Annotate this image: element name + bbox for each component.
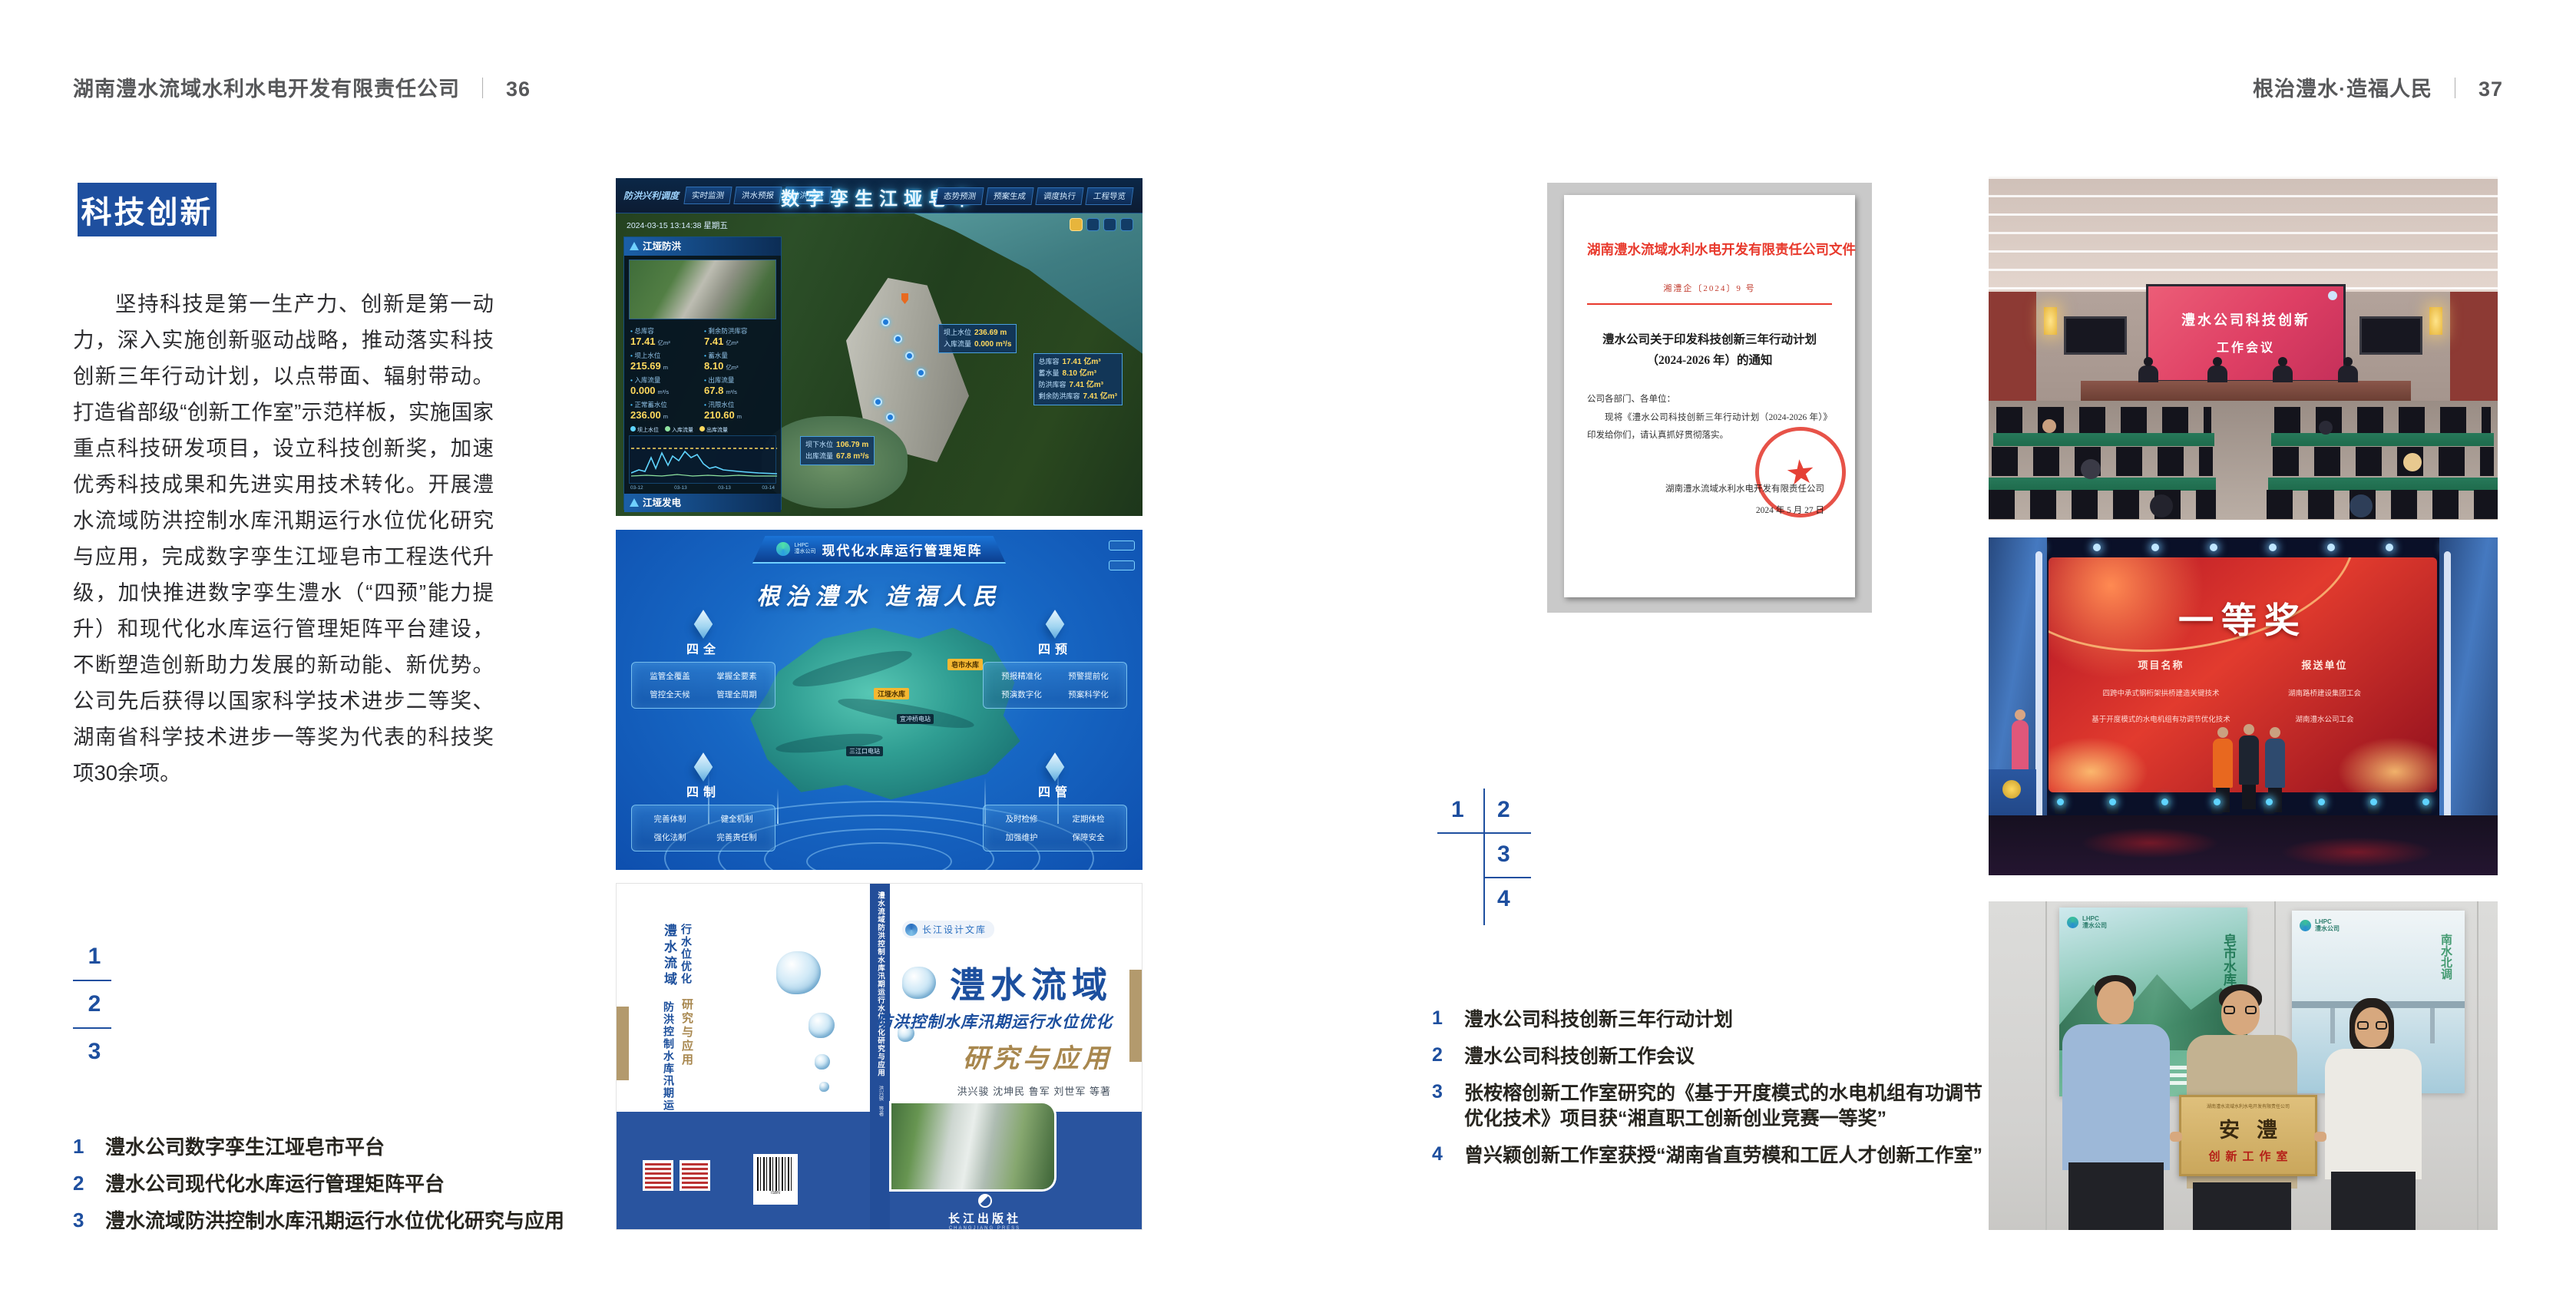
attendee-head [2319,421,2333,435]
left-page-header: 湖南澧水流域水利水电开发有限责任公司｜36 [73,72,531,102]
book-authors: 洪兴骏 沈坤民 鲁军 刘世军 等著 [957,1083,1111,1098]
screen-logo [2328,291,2337,300]
x-tick: 03-13 [674,485,687,491]
map-tag-downstream: 坝下水位106.79 m 出库流量67.8 m³/s [800,436,875,465]
tool-icon [1086,218,1100,231]
stat-value: 215.69 [630,360,661,372]
right-page-header: 根治澧水·造福人民｜37 [2253,72,2503,102]
stat-label: 汛限水位 [704,400,775,409]
header-divider: ｜ [472,78,494,101]
panel-item: 强化法制 [637,832,703,843]
tag-value: 17.41 亿m³ [1063,358,1101,366]
bridge-pier [2330,1008,2335,1043]
wall-seam [2477,901,2478,1230]
dashboard-timestamp: 2024-03-15 13:14:38 星期五 [627,220,728,231]
panel-item: 预案科学化 [1055,689,1122,700]
panel-siquan: 四全 监管全覆盖 掌握全要素 管控全天候 管理全周期 [631,616,775,709]
audience-row [1992,447,2213,476]
stat-label: 年累计发电量 [704,515,775,516]
series-badge: 长江设计文库 [902,921,994,938]
gate-marker [886,413,894,422]
panel-item: 预警提前化 [1055,670,1122,682]
tool-icon [1120,218,1133,231]
audience-row [1996,407,2211,436]
caption-text: 澧水流域防洪控制水库汛期运行水位优化研究与应用 [105,1208,564,1234]
project-name: 基于开度模式的水电机组有功调节优化技术 [2079,713,2243,724]
wall-lamp [2429,307,2442,335]
moving-head-light [2264,795,2275,814]
flood-stats: 总库容17.41亿m³ 剩余防洪库容7.41亿m³ 坝上水位215.69m 蓄水… [624,323,781,425]
document-paper: 湖南澧水流域水利水电开发有限责任公司文件 湘澧企〔2024〕9 号 澧水公司关于… [1564,195,1855,597]
lhpc-logo [776,542,790,556]
moving-head-light [2159,795,2171,814]
panel-title: 四制 [631,782,775,800]
screen-title-line2: 工作会议 [2148,337,2343,355]
cube-icon [694,610,713,639]
person-head [2097,981,2134,1024]
audience-row [2273,447,2494,476]
tag-label: 坝上水位 [944,329,971,336]
figure-index-number: 3 [73,1035,116,1069]
attendee-head [2349,494,2373,517]
green-desk [1989,478,2216,491]
x-tick: 03-14 [762,485,775,491]
moving-head-light [2316,795,2327,814]
spine-authors: 洪兴骏 等著 [876,1086,884,1116]
book-title-tail: 研究与应用 [963,1037,1113,1075]
caption-row: 3澧水流域防洪控制水库汛期运行水位优化研究与应用 [73,1208,564,1234]
tag-value: 0.000 m³/s [974,340,1011,349]
series-name: 长江设计文库 [922,923,987,936]
stat-value: 210.60 [704,409,735,421]
gate-marker [894,335,902,343]
figure-digital-twin-dashboard: 防洪兴利调度 实时监测 洪水预报 防洪预警 数字孪生江垭皂市 态势预测 预案生成… [616,178,1143,516]
caption-row: 2澧水公司现代化水库运行管理矩阵平台 [73,1172,564,1197]
stat-unit: m³/s [658,388,670,395]
document-header: 湖南澧水流域水利水电开发有限责任公司文件 [1587,240,1832,259]
tag-value: 236.69 m [974,329,1007,337]
stat-label: 总库容 [630,326,701,336]
legend-swatch [630,426,636,431]
tag-value: 7.41 亿m³ [1070,381,1103,389]
stat-label: 入库流量 [630,375,701,385]
left-figure-index: 1 2 3 [73,940,116,1069]
stage-lights-top [2035,544,2452,556]
dais-desk [2081,381,2411,401]
stat: 蓄水量8.10亿m³ [703,349,776,374]
panelist-silhouette [2207,365,2227,382]
glasses-icon [2357,1021,2369,1030]
book-title-main: 澧水流域 [950,957,1113,1008]
stat-unit: 亿m³ [726,364,738,371]
panel-sizhi: 四制 完善体制 健全机制 强化法制 完善责任制 [631,759,775,851]
panel-item: 加强维护 [988,832,1055,843]
document-salutation: 公司各部门、各单位： [1587,392,1832,405]
tag-value: 106.79 m [836,441,868,449]
moving-head-light [2107,795,2118,814]
stat-label: 剩余防洪库容 [704,326,775,336]
tab-realtime-monitor: 实时监测 [683,187,732,204]
person-pants [2068,1162,2164,1230]
stat: 年发电计划6.3000亿度 [629,514,703,516]
tab-project-tour: 工程导览 [1085,187,1133,205]
legend-swatch [665,426,670,431]
section-badge: 科技创新 [78,183,217,236]
person-shirt-blue [2062,1024,2170,1170]
right-caption-list: 1澧水公司科技创新三年行动计划 2澧水公司科技创新工作会议 3张桉榕创新工作室研… [1432,1007,1989,1180]
cube-icon [694,752,713,782]
tag-value: 67.8 m³/s [836,452,869,461]
tag-label: 总库容 [1039,358,1060,365]
attendee-head [2403,453,2422,471]
legend-label: 坝上水位 [637,428,659,433]
panel-item: 及时检修 [988,813,1055,825]
caption-text: 澧水公司数字孪生江垭皂市平台 [105,1135,385,1160]
panel-item: 完善体制 [637,813,703,825]
water-level-chart [629,435,776,484]
body-paragraph: 坚持科技是第一生产力、创新是第一动力，深入实施创新驱动战略，推动落实科技创新三年… [73,286,494,791]
cover-tan-tab [1129,970,1142,1062]
dashboard-right-tabs: 态势预测 预案生成 调度执行 工程导览 [937,187,1136,205]
poster-logo-text: 澧水公司 [2315,925,2340,932]
map-marker: 江垭水库 [874,688,909,699]
legend-swatch [699,426,705,431]
audience-row [1989,490,2216,519]
caption-number: 2 [73,1172,105,1197]
wall-panel [1989,292,2036,401]
light-dot [2093,544,2101,551]
caption-row: 2澧水公司科技创新工作会议 [1432,1044,1989,1070]
panel-title: 四全 [631,639,775,657]
spine-title: 澧水流域防洪控制水库汛期运行水位优化研究与应用 [875,891,885,1077]
qr-code [643,1160,673,1191]
header-button [1109,541,1135,551]
wall-tv [2064,316,2127,355]
water-drop [819,1082,829,1092]
header-button [1109,560,1135,570]
stat: 年累计发电量1.2907亿度 [703,514,776,516]
moving-head-light [2211,795,2223,814]
figure-index-number: 3 [1497,841,1510,868]
panel-item: 定期体检 [1055,813,1122,825]
index-line-horizontal [1483,877,1531,878]
moving-head-light [2368,795,2379,814]
figure-index-number: 1 [1451,797,1464,823]
meeting-screen: 澧水公司科技创新 工作会议 [2146,284,2346,382]
chart-canvas [631,438,777,478]
caption-number: 1 [1432,1007,1464,1033]
panel-item: 健全机制 [703,813,770,825]
caption-row: 1澧水公司数字孪生江垭皂市平台 [73,1135,564,1160]
gold-glow [2337,737,2437,792]
stat-value: 0.000 [630,385,656,396]
stat-value: 236.00 [630,409,661,421]
poster-logo-text: LHPC [2315,918,2332,925]
panel-siguan: 四管 及时检修 定期体检 加强维护 保障安全 [983,759,1127,851]
glasses-icon [2245,1006,2257,1014]
plaque-header: 湖南澧水流域水利水电开发有限责任公司 [2181,1103,2315,1109]
green-desk [1993,433,2214,446]
award-headline: 一等奖 [2049,593,2437,643]
panelist-silhouette [2138,365,2158,382]
stat: 汛限水位210.60m [703,398,776,423]
glasses-icon [2376,1021,2387,1030]
qr-code [680,1160,710,1191]
caption-number: 3 [73,1208,105,1234]
wall-lamp [2044,307,2057,335]
tag-label: 剩余防洪库容 [1039,392,1080,400]
stat: 出库流量67.8m³/s [703,374,776,398]
figure-index-number: 1 [73,940,116,974]
map-tag-upstream: 坝上水位236.69 m 入库流量0.000 m³/s [938,324,1017,353]
workshop-plaque: 湖南澧水流域水利水电开发有限责任公司 安澧 创新工作室 [2179,1095,2317,1176]
right-page-number: 37 [2478,78,2503,101]
light-dot [2210,544,2217,551]
barcode: ISBN [753,1154,798,1205]
stat: 剩余防洪库容7.41亿m³ [703,325,776,349]
project-name: 四跨中承式钢桁架拱桥建造关键技术 [2079,687,2243,698]
slogan-calligraphy: 根治澧水 造福人民 [616,577,1143,611]
hand [2170,1132,2182,1142]
changjiang-press-logo [978,1194,992,1208]
presenter-suit [2239,736,2259,785]
poster-logo-text: 澧水公司 [2082,922,2107,929]
panel-title: 四预 [983,639,1127,657]
index-line-vertical [1483,789,1485,925]
poster-vertical-title: 南水北调 [2438,934,2454,980]
series-logo [905,924,918,936]
wall-tv [2359,316,2422,355]
figure-index-number: 2 [1497,797,1510,823]
divider [73,980,111,981]
book-title-sub: 防洪控制水库汛期运行水位优化 [876,1010,1113,1033]
x-tick: 03-12 [630,485,643,491]
person-shirt-white [2325,1049,2422,1179]
gate-marker [874,398,882,406]
index-line-horizontal [1437,832,1531,834]
stat-unit: m [737,413,742,420]
caption-text: 澧水公司科技创新三年行动计划 [1464,1007,1733,1033]
tab-dispatch-execution: 调度执行 [1035,187,1083,205]
publisher-block: 长江出版社 CHANGJIANG PRESS [948,1194,1021,1230]
floor-reflection [2280,837,2434,868]
light-dot [2327,544,2335,551]
light-dot [2269,544,2277,551]
wall-panel [2450,292,2498,401]
panel-item: 监管全覆盖 [637,670,703,682]
plaque-subtitle: 创新工作室 [2181,1148,2315,1164]
cover-dam-photo [891,1103,1054,1189]
header-divider: ｜ [2445,78,2466,101]
gold-glow [2049,737,2148,792]
logo-text: LHPC [795,543,809,548]
water-drop [815,1054,830,1070]
panel-title-flood: 江垭防洪 [624,237,781,256]
panel-item: 管控全天候 [637,689,703,700]
lhpc-logo [2300,920,2311,931]
water-drop [776,951,821,994]
stat-value: 67.8 [704,385,723,396]
panel-item: 掌握全要素 [703,670,770,682]
caption-number: 3 [1432,1081,1464,1132]
tag-label: 防洪库容 [1039,381,1066,388]
panel-item: 预报精准化 [988,670,1055,682]
column-org: 报送单位 [2243,657,2406,672]
light-pillar [777,789,779,824]
panel-item: 完善责任制 [703,832,770,843]
green-desk [2268,478,2498,491]
legend-label: 出库流量 [706,428,728,433]
panelist-silhouette [2338,365,2358,382]
figure-official-document: 湖南澧水流域水利水电开发有限责任公司文件 湘澧企〔2024〕9 号 澧水公司关于… [1547,183,1872,613]
panel-item: 管理全周期 [703,689,770,700]
figure-book-cover: 澧水流域 防洪控制水库汛期运行水位优化 研究与应用 ISBN 澧水流域防洪控制水… [616,883,1143,1230]
chart-legend: 坝上水位 入库流量 出库流量 [624,425,781,434]
caption-row: 3张桉榕创新工作室研究的《基于开度模式的水电机组有功调节优化技术》项目获“湘直职… [1432,1081,1989,1132]
caption-text: 澧水公司现代化水库运行管理矩阵平台 [105,1172,445,1197]
stat-unit: 亿m³ [658,339,670,346]
stat-label: 蓄水量 [704,351,775,360]
dashboard-toolbar [1070,218,1133,231]
panel-siyu: 四预 预报精准化 预警提前化 预演数字化 预案科学化 [983,616,1127,709]
stat-label: 年发电计划 [630,515,701,516]
audience-row [2274,407,2491,436]
stat-value: 8.10 [704,360,723,372]
water-drop [809,1013,835,1038]
cube-icon [1046,752,1064,782]
stat: 入库流量0.000m³/s [629,374,703,398]
figure-innovation-meeting: 澧水公司科技创新 工作会议 [1989,177,2498,520]
star-icon: ★ [1784,451,1818,494]
cover-tan-tab [617,1007,629,1080]
page-motto: 根治澧水·造福人民 [2253,78,2432,101]
caption-number: 1 [73,1135,105,1160]
stat-label: 坝上水位 [630,351,701,360]
stat-unit: m [663,364,668,371]
figure-index-number: 2 [73,987,116,1021]
light-dot [2386,544,2393,551]
back-title-line: 研究与应用 [680,998,693,1067]
green-desk [2271,433,2494,446]
left-page-number: 36 [506,78,531,101]
left-data-panel: 江垭防洪 总库容17.41亿m³ 剩余防洪库容7.41亿m³ 坝上水位215.6… [623,236,782,510]
tag-label: 坝下水位 [805,441,833,448]
stat: 坝上水位215.69m [629,349,703,374]
divider [73,1027,111,1029]
caption-text: 澧水公司科技创新工作会议 [1464,1044,1695,1070]
plaque-title: 安澧 [2181,1113,2315,1143]
podium-emblem [2002,780,2021,798]
tab-situation-forecast: 态势预测 [935,187,984,205]
stage-side-wall [2439,537,2498,831]
back-cover-title: 澧水流域 防洪控制水库汛期运行水位优化 研究与应用 [660,924,695,1116]
ceiling [1989,177,2498,292]
publisher-name: 长江出版社 [948,1210,1021,1226]
lhpc-logo [2067,917,2078,928]
stat: 正常蓄水位236.00m [629,398,703,423]
panel-title: 四管 [983,782,1127,800]
tool-icon [1103,218,1116,231]
stat-value: 17.41 [630,336,656,347]
caption-number: 2 [1432,1044,1464,1070]
hand [2314,1132,2326,1142]
caption-text: 张桉榕创新工作室研究的《基于开度模式的水电机组有功调节优化技术》项目获“湘直职工… [1464,1081,1989,1132]
stage-light-fixtures [2055,795,2432,814]
stat-label: 出库流量 [704,375,775,385]
cube-icon [1046,610,1064,639]
stat-value: 7.41 [704,336,723,347]
stat-label: 正常蓄水位 [630,400,701,409]
tag-label: 蓄水量 [1039,369,1060,377]
column-project: 项目名称 [2079,657,2243,672]
figure-innovation-workshop-team: LHPC澧水公司 皂市水库 LHPC澧水公司 南水北调 湖南澧水流域水利水电开发… [1989,901,2498,1230]
power-stats: 年发电计划6.3000亿度 年累计发电量1.2907亿度 月累计发电量3359.… [624,512,781,516]
tag-value: 7.41 亿m³ [1083,392,1117,401]
tool-icon [1070,218,1083,231]
panelist-silhouette [2273,365,2293,382]
tag-value: 8.10 亿m³ [1063,369,1096,378]
legend-label: 入库流量 [672,428,693,433]
gate-marker [905,352,914,360]
moving-head-light [2420,795,2432,814]
matrix-header: LHPC澧水公司 现代化水库运行管理矩阵 [752,536,1006,564]
gate-marker [917,369,925,377]
wall-seam [2045,901,2047,1230]
panel-title-power: 江垭发电 [624,494,781,512]
caption-text: 曾兴颖创新工作室获授“湖南省直劳模和工匠人才创新工作室” [1464,1143,1982,1169]
attendee-head [2081,459,2101,479]
book-spine: 澧水流域防洪控制水库汛期运行水位优化研究与应用 洪兴骏 等著 [870,884,890,1230]
poster-vertical-title: 皂市水库 [2219,934,2238,986]
tag-label: 入库流量 [944,340,971,348]
audience-row [2267,490,2498,519]
chart-x-labels: 03-12 03-13 03-13 03-14 [624,485,781,491]
map-marker: 三江口电站 [846,746,883,756]
caption-number: 4 [1432,1143,1464,1169]
gate-marker [881,318,890,326]
module-label: 防洪兴利调度 [623,189,679,202]
document-title-line1: 澧水公司关于印发科技创新三年行动计划 [1602,333,1817,346]
attendee-head [2042,419,2056,433]
figure-award-ceremony: 一等奖 项目名称 报送单位 四跨中承式钢桁架拱桥建造关键技术 湖南路桥建设集团工… [1989,537,2498,875]
figure-index-number: 4 [1497,886,1510,912]
screen-title-line1: 澧水公司科技创新 [2148,309,2343,329]
org-name: 湖南路桥建设集团工会 [2243,687,2406,698]
attendee-head [2150,494,2173,517]
light-dot [2151,544,2159,551]
stat-unit: 亿m³ [726,339,738,346]
x-tick: 03-13 [718,485,731,491]
water-drop [902,967,936,999]
floor-reflection [2081,828,2219,858]
tag-label: 出库流量 [805,452,833,460]
map-marker: 皂市水库 [947,659,983,670]
org-name: 湖南澧水公司工会 [2243,713,2406,724]
document-title-line2: （2024-2026 年）的通知 [1646,354,1772,367]
terrain-ridge [790,644,914,693]
red-rule [1587,303,1832,305]
map-marker: 宜冲桥电站 [897,714,934,724]
matrix-title: 现代化水库运行管理矩阵 [822,540,983,559]
awardee-orange [2213,739,2233,788]
panel-item: 预演数字化 [988,689,1055,700]
stat-unit: m³/s [726,388,737,395]
awardee-blue [2265,739,2285,788]
caption-row: 1澧水公司科技创新三年行动计划 [1432,1007,1989,1033]
person-pants [2331,1172,2416,1230]
tab-plan-generation: 预案生成 [985,187,1033,205]
moving-head-light [2055,795,2066,814]
